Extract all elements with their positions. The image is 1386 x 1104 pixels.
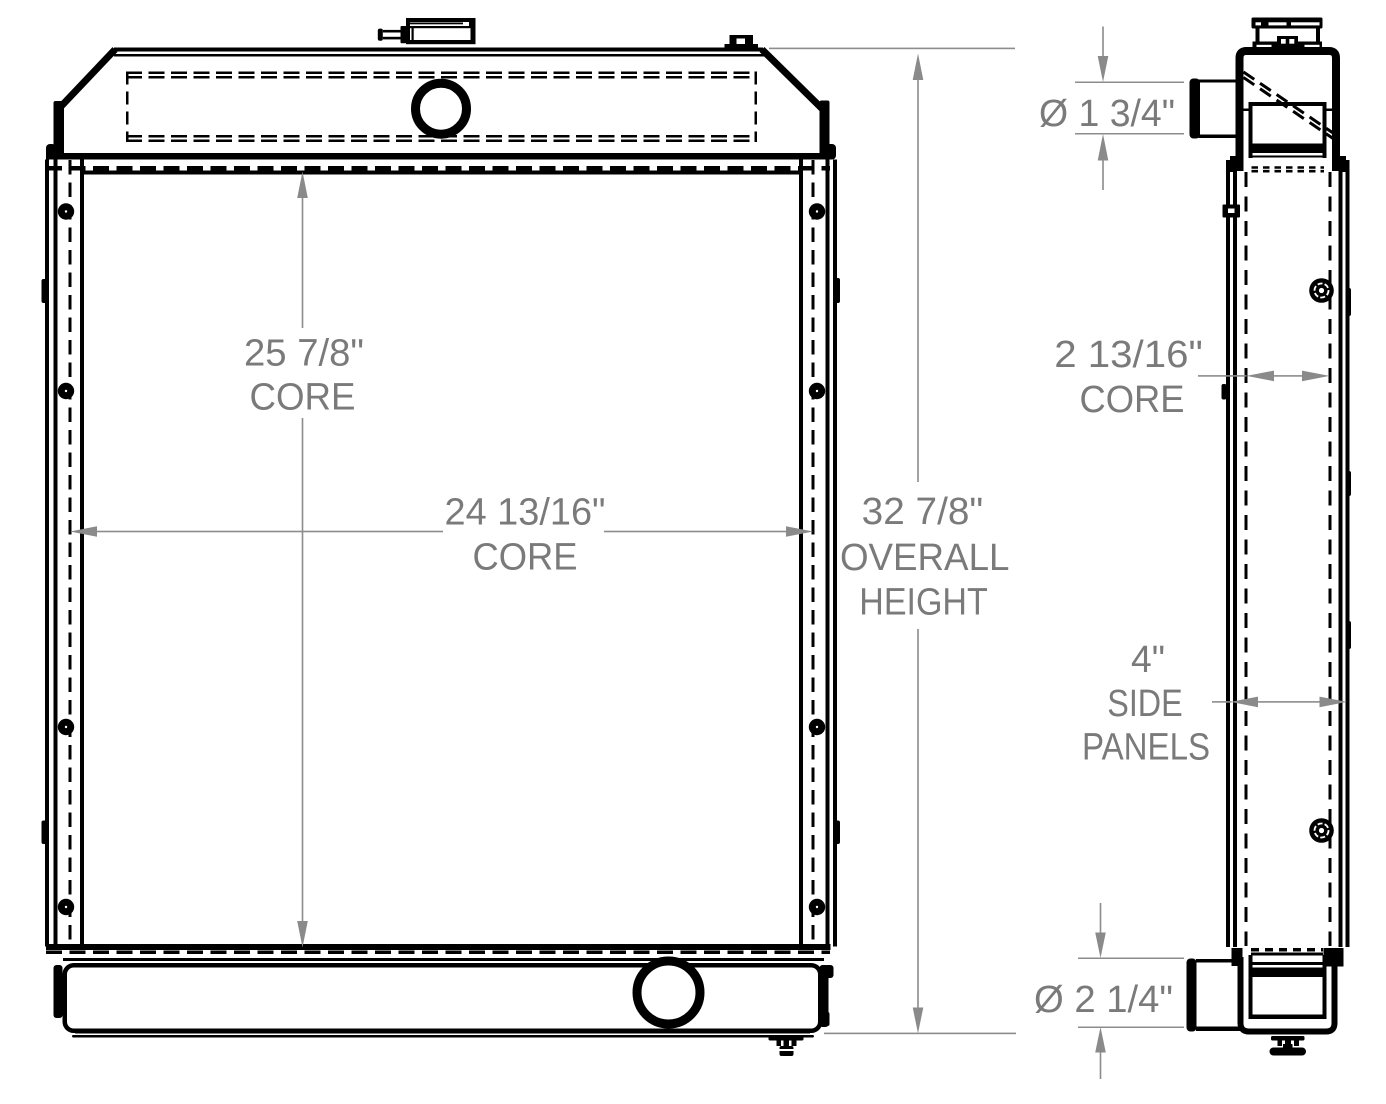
svg-text:OVERALL: OVERALL [840, 537, 1010, 579]
svg-text:CORE: CORE [1080, 379, 1185, 421]
svg-text:Ø 1 3/4": Ø 1 3/4" [1039, 93, 1175, 135]
svg-text:25 7/8": 25 7/8" [244, 333, 364, 375]
svg-text:HEIGHT: HEIGHT [859, 582, 988, 624]
svg-text:Ø 2 1/4": Ø 2 1/4" [1034, 979, 1173, 1021]
svg-text:PANELS: PANELS [1082, 727, 1210, 769]
svg-text:CORE: CORE [473, 536, 578, 578]
svg-text:SIDE: SIDE [1107, 683, 1183, 725]
svg-text:2 13/16": 2 13/16" [1054, 334, 1203, 376]
svg-text:24 13/16": 24 13/16" [445, 491, 606, 533]
svg-text:32 7/8": 32 7/8" [862, 491, 984, 533]
svg-text:CORE: CORE [250, 377, 356, 419]
svg-text:4": 4" [1131, 639, 1165, 681]
